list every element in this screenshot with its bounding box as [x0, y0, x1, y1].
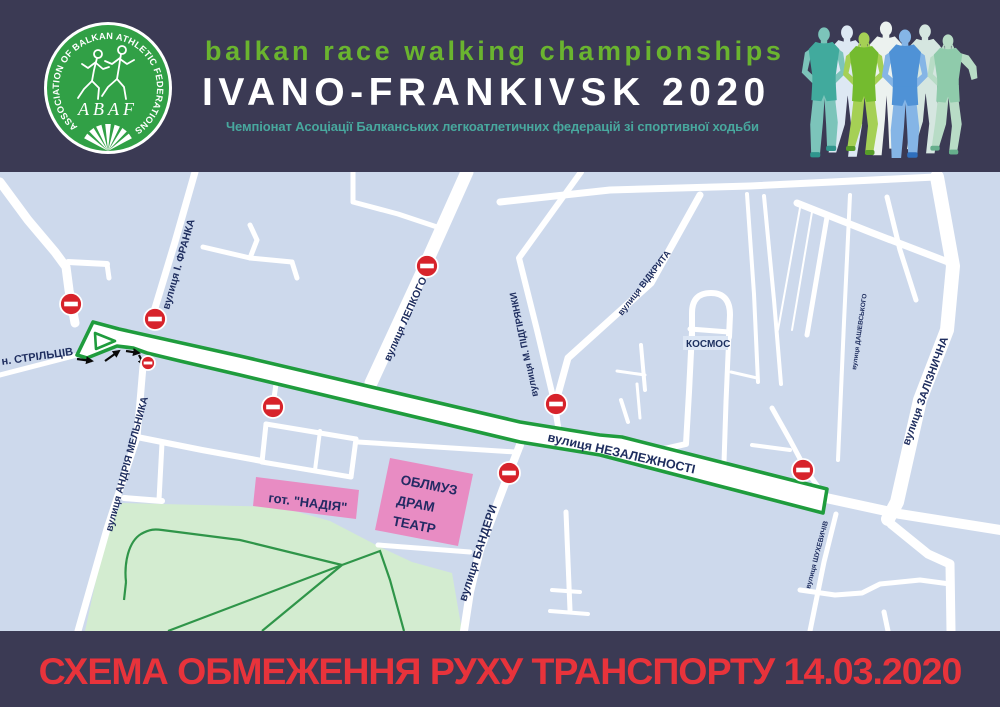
svg-text:КОСМОС: КОСМОС [686, 339, 730, 350]
svg-text:ABAF: ABAF [77, 99, 138, 119]
